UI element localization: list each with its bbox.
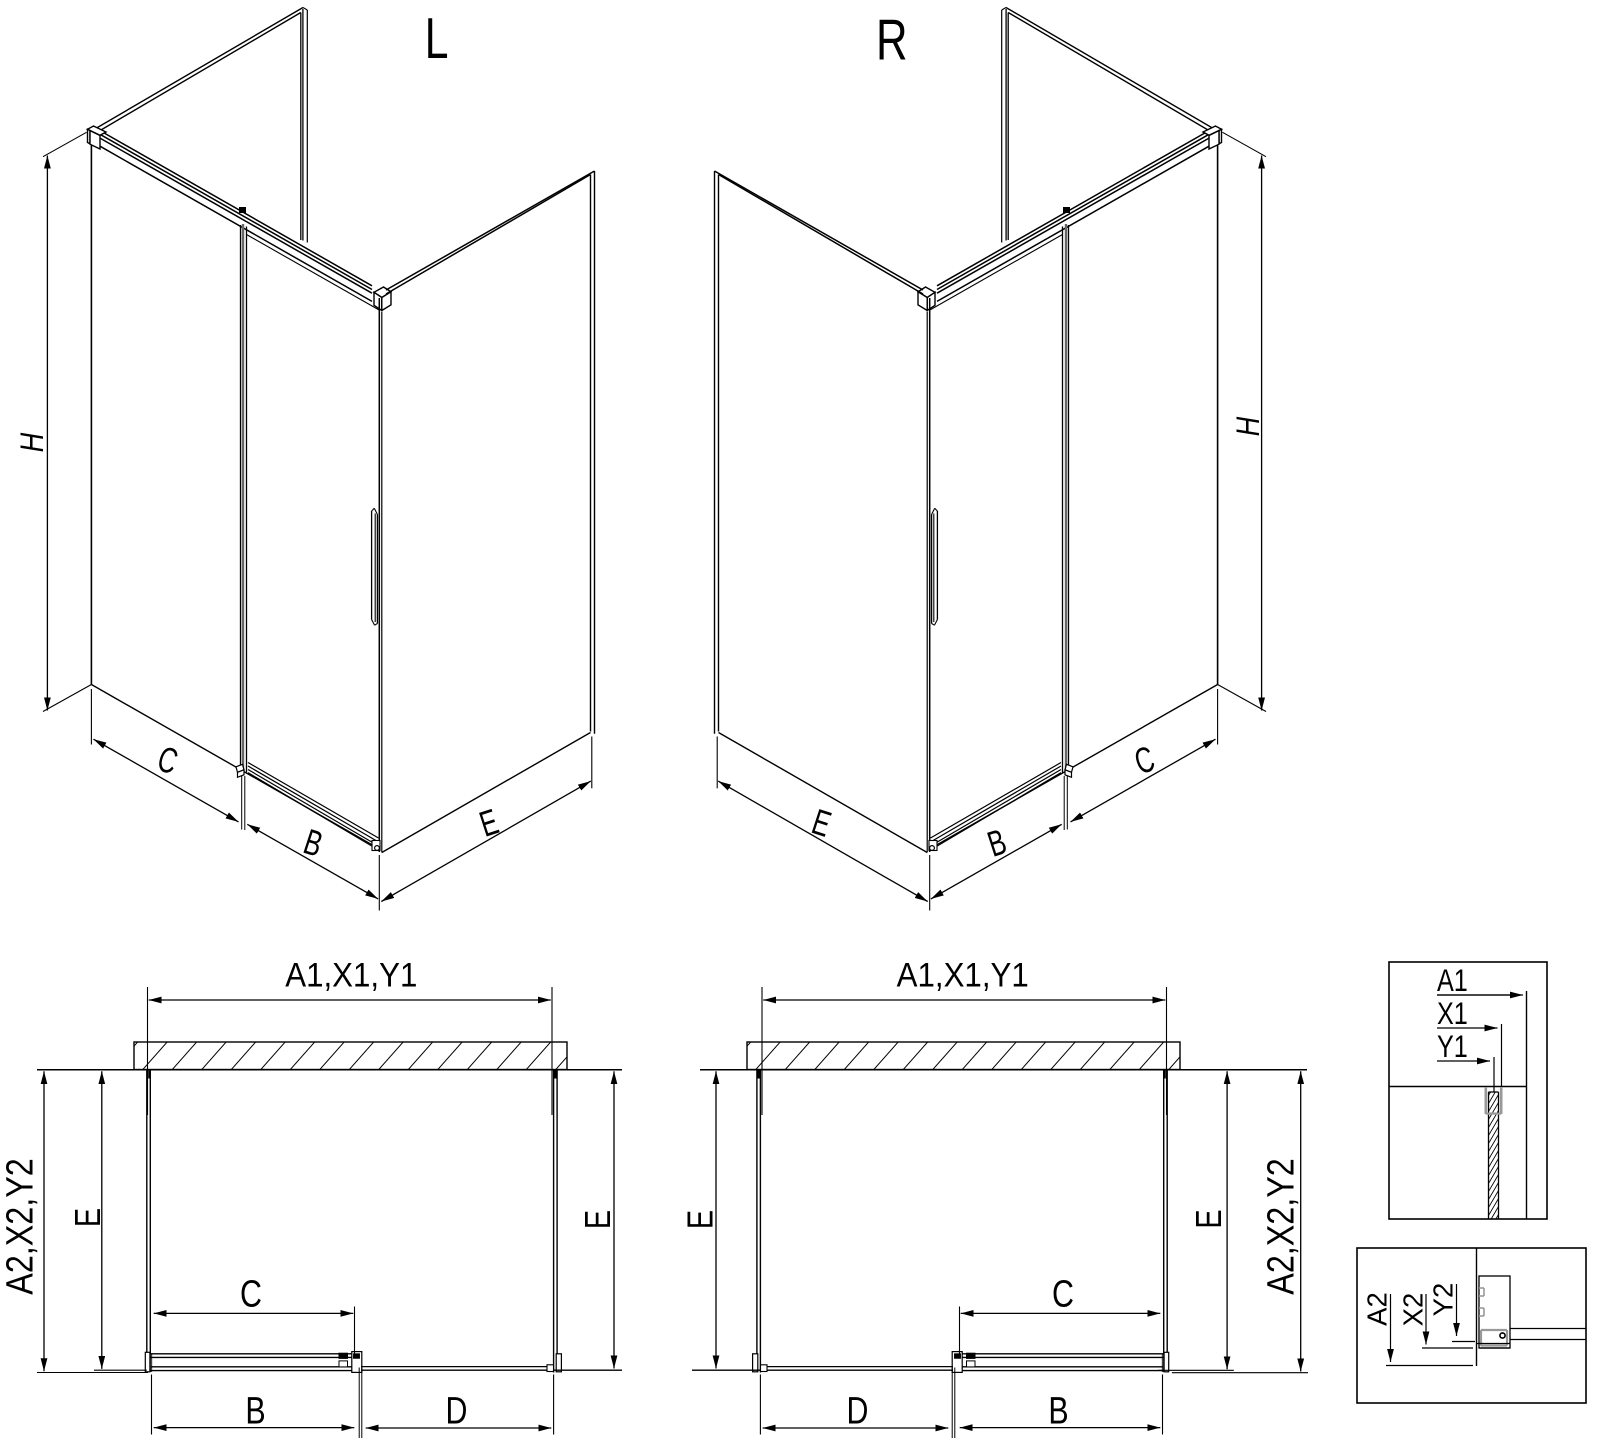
- svg-text:D: D: [847, 1390, 869, 1432]
- svg-text:A2,X2,Y2: A2,X2,Y2: [0, 1158, 41, 1294]
- svg-text:E: E: [679, 1210, 720, 1229]
- svg-text:H: H: [1231, 416, 1267, 436]
- svg-text:X2: X2: [1398, 1293, 1429, 1327]
- svg-text:X1: X1: [1437, 996, 1468, 1031]
- svg-text:E: E: [67, 1208, 108, 1227]
- svg-text:A1,X1,Y1: A1,X1,Y1: [285, 955, 417, 994]
- svg-text:A2: A2: [1362, 1292, 1393, 1326]
- svg-text:E: E: [1188, 1209, 1229, 1228]
- svg-text:R: R: [876, 8, 908, 72]
- svg-text:C: C: [1052, 1273, 1074, 1315]
- svg-text:D: D: [446, 1390, 468, 1432]
- svg-text:Y1: Y1: [1437, 1029, 1468, 1064]
- svg-text:A1,X1,Y1: A1,X1,Y1: [897, 955, 1029, 994]
- svg-text:B: B: [1048, 1390, 1068, 1432]
- svg-text:L: L: [425, 6, 449, 71]
- svg-text:E: E: [577, 1210, 618, 1229]
- svg-text:H: H: [15, 432, 51, 452]
- svg-text:C: C: [240, 1273, 262, 1315]
- svg-text:A1: A1: [1437, 963, 1468, 998]
- svg-text:A2,X2,Y2: A2,X2,Y2: [1260, 1158, 1302, 1294]
- svg-text:Y2: Y2: [1428, 1283, 1459, 1317]
- svg-text:B: B: [245, 1390, 265, 1432]
